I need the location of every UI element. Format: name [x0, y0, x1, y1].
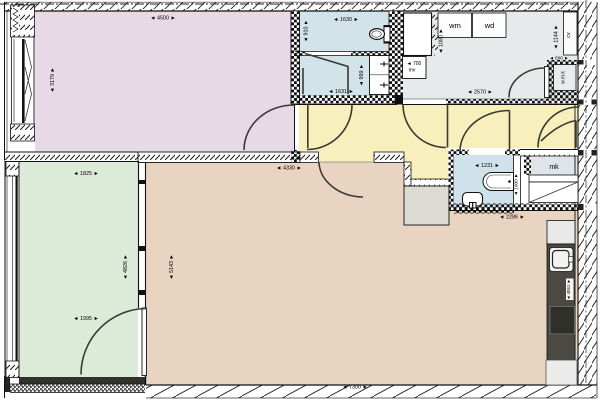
svg-text:◄ 700: ◄ 700 [407, 61, 422, 67]
svg-text:◄ 2286 ►: ◄ 2286 ► [499, 215, 525, 221]
svg-text:wm: wm [448, 21, 461, 30]
svg-text:◄ 3179 ►: ◄ 3179 ► [50, 67, 56, 93]
svg-text:◄ 4500 ►: ◄ 4500 ► [150, 16, 176, 22]
svg-text:◄ 1995 ►: ◄ 1995 ► [73, 316, 99, 322]
svg-text:◄ 2570 ►: ◄ 2570 ► [467, 90, 493, 96]
svg-text:◄ 4330 ►: ◄ 4330 ► [276, 166, 302, 172]
svg-text:◄ 1080 ►: ◄ 1080 ► [439, 28, 445, 54]
svg-text:◄ 7300 ►: ◄ 7300 ► [342, 385, 368, 391]
svg-text:◄ 1000 ►: ◄ 1000 ► [513, 173, 519, 196]
svg-text:◄ 4061 ►: ◄ 4061 ► [566, 279, 571, 300]
svg-text:mk: mk [549, 164, 559, 171]
svg-text:◄ 600 ►: ◄ 600 ► [549, 56, 568, 61]
svg-text:◄ 1231 ►: ◄ 1231 ► [474, 163, 500, 169]
svg-text:w.m.k: w.m.k [561, 71, 567, 84]
svg-text:◄ 1630 ►: ◄ 1630 ► [333, 17, 359, 23]
svg-text:cv: cv [566, 32, 572, 38]
svg-text:◄ 1631 ►: ◄ 1631 ► [328, 89, 354, 95]
svg-text:◄ 1825 ►: ◄ 1825 ► [73, 171, 99, 177]
svg-text:◄ 910 ►: ◄ 910 ► [304, 20, 310, 43]
svg-text:◄ 1144 ►: ◄ 1144 ► [554, 24, 560, 49]
svg-text:◄ 999 ►: ◄ 999 ► [359, 64, 365, 87]
svg-text:◄ 5143 ►: ◄ 5143 ► [169, 254, 175, 280]
svg-text:mv: mv [409, 68, 416, 74]
svg-text:wd: wd [484, 21, 495, 30]
svg-text:◄ 4826 ►: ◄ 4826 ► [123, 254, 129, 280]
